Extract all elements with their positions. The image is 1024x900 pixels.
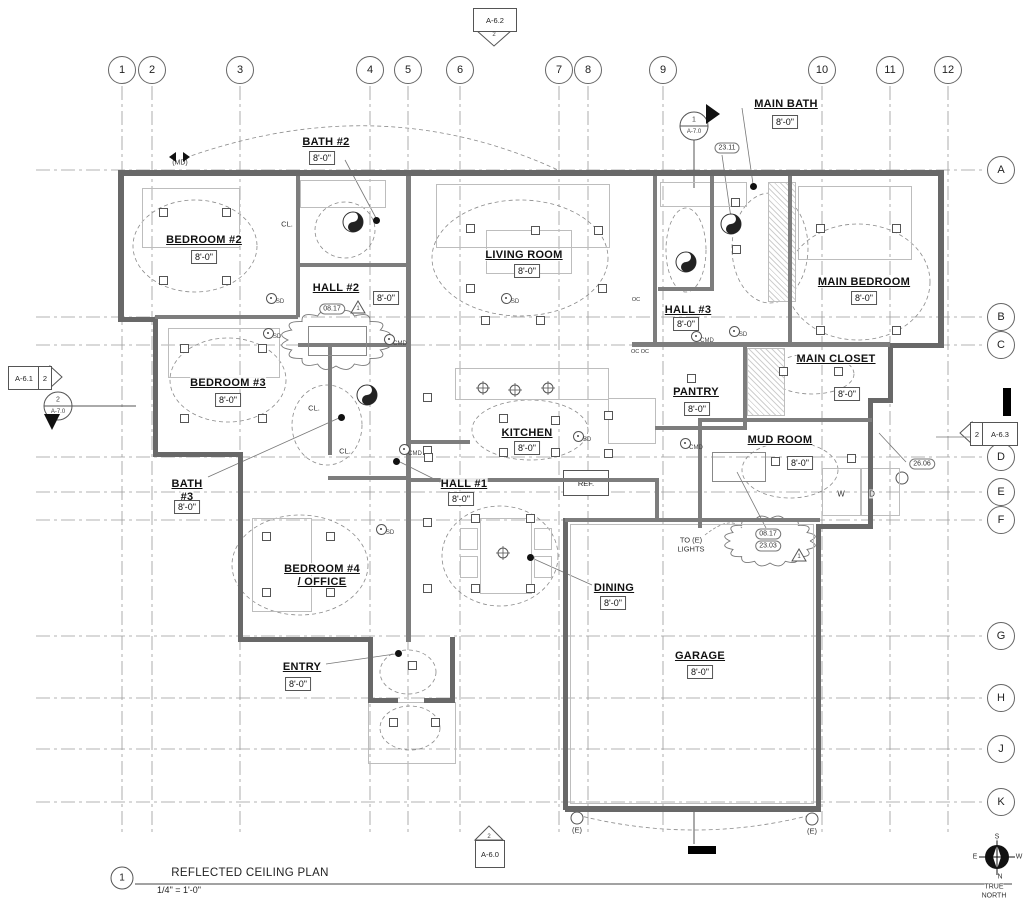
plan-note: CL.: [281, 220, 293, 229]
recessed-light-icon: [816, 224, 825, 233]
wall-segment: [155, 315, 298, 319]
recessed-light-icon: [159, 208, 168, 217]
recessed-light-icon: [604, 449, 613, 458]
grid-bubble-row-B: B: [987, 303, 1015, 331]
room-label: BEDROOM #4: [284, 563, 360, 575]
grid-bubble-column-10: 10: [808, 56, 836, 84]
grid-bubble-row-G: G: [987, 622, 1015, 650]
recessed-light-icon: [431, 718, 440, 727]
grid-bubble-column-8: 8: [574, 56, 602, 84]
wall-segment: [118, 170, 944, 176]
grid-bubble-column-2: 2: [138, 56, 166, 84]
furniture-outline: [455, 368, 609, 400]
wall-segment: [238, 452, 243, 642]
ceiling-height-tag: 8'-0": [174, 500, 200, 514]
section-cut-arrow: [706, 104, 720, 124]
plan-title: REFLECTED CEILING PLAN: [171, 867, 328, 879]
fixture-circle-icon: [806, 813, 818, 825]
recessed-light-icon: [262, 588, 271, 597]
matchline-bar: [1003, 388, 1011, 416]
furniture-outline: [300, 180, 386, 208]
section-marker-number: 2: [56, 397, 60, 404]
ceiling-height-tag: 8'-0": [514, 264, 540, 278]
keynote-dot: [527, 554, 534, 561]
recessed-light-icon: [262, 532, 271, 541]
room-label: KITCHEN: [502, 427, 553, 439]
recessed-light-icon: [526, 514, 535, 523]
room-label: / OFFICE: [298, 576, 347, 588]
ceiling-height-tag: 8'-0": [834, 387, 860, 401]
keynote-leader-line: [208, 418, 339, 477]
wall-segment: [565, 806, 820, 812]
section-cut-arrow: [44, 414, 60, 430]
recessed-light-icon: [466, 224, 475, 233]
recessed-light-icon: [551, 448, 560, 457]
smoke-detector-label: SD: [276, 299, 284, 305]
smoke-detector-label: SD: [386, 530, 394, 536]
recessed-light-icon: [471, 584, 480, 593]
wall-segment: [745, 342, 890, 347]
keynote-tag: 23.11: [715, 143, 740, 154]
recessed-light-icon: [258, 344, 267, 353]
room-label: ENTRY: [283, 661, 321, 673]
wall-segment: [698, 418, 702, 528]
section-marker-number: 1: [692, 117, 696, 124]
grid-bubble-row-D: D: [987, 443, 1015, 471]
recessed-light-icon: [180, 344, 189, 353]
wall-segment: [408, 440, 470, 444]
plan-note: W: [837, 490, 845, 499]
grid-bubble-row-F: F: [987, 506, 1015, 534]
grid-bubble-column-6: 6: [446, 56, 474, 84]
furniture-outline: [798, 186, 912, 260]
room-label: HALL #2: [313, 282, 360, 294]
furniture-outline: [608, 398, 656, 444]
co-detector-label: CMD: [393, 341, 407, 347]
grid-bubble-row-K: K: [987, 788, 1015, 816]
recessed-light-icon: [834, 367, 843, 376]
grid-bubble-row-C: C: [987, 331, 1015, 359]
keynote-dot: [395, 650, 402, 657]
smoke-detector-label: SD: [273, 334, 281, 340]
north-label-right: W: [1016, 854, 1023, 861]
ceiling-height-tag: 8'-0": [191, 250, 217, 264]
wall-segment: [888, 343, 893, 403]
room-label: MAIN CLOSET: [796, 353, 875, 365]
wall-segment: [296, 176, 300, 317]
keynote-tag: 23.03: [755, 541, 781, 552]
wall-segment: [658, 287, 714, 291]
recessed-light-icon: [551, 416, 560, 425]
wall-segment: [153, 452, 243, 457]
recessed-light-icon: [687, 374, 696, 383]
keynote-dot: [750, 183, 757, 190]
room-label: HALL #3: [665, 304, 712, 316]
wall-segment: [632, 342, 748, 347]
ceiling-height-tag: 8'-0": [373, 291, 399, 305]
recessed-light-icon: [731, 198, 740, 207]
plan-note: D: [869, 490, 875, 499]
room-label: BATH: [172, 478, 203, 490]
recessed-light-icon: [389, 718, 398, 727]
wall-segment: [653, 176, 657, 346]
ceiling-height-tag: 8'-0": [309, 151, 335, 165]
room-label: GARAGE: [675, 650, 725, 662]
detail-ref-sheet: A-6.1: [8, 366, 40, 390]
co-detector-label: CMD: [700, 338, 714, 344]
furniture-outline: [460, 556, 478, 578]
recessed-light-icon: [816, 326, 825, 335]
recessed-light-icon: [423, 393, 432, 402]
plan-note: (E): [572, 826, 582, 835]
wall-segment: [888, 343, 944, 348]
ceiling-height-tag: 8'-0": [448, 492, 474, 506]
wall-segment: [788, 176, 792, 346]
closet-hatch: [747, 348, 785, 416]
co-detector-label: CMD: [408, 451, 422, 457]
recessed-light-icon: [326, 532, 335, 541]
room-label: MAIN BEDROOM: [818, 276, 910, 288]
recessed-light-icon: [779, 367, 788, 376]
grid-bubble-column-11: 11: [876, 56, 904, 84]
plan-note: CL.: [308, 404, 320, 413]
plan-callout-number: 1: [111, 867, 134, 890]
detail-ref-sheet: A-6.0: [475, 840, 505, 868]
true-north-caption: TRUE: [984, 884, 1003, 891]
grid-bubble-column-7: 7: [545, 56, 573, 84]
grid-bubble-column-3: 3: [226, 56, 254, 84]
section-marker-sheet: A-7.0: [51, 409, 65, 415]
wall-segment: [424, 698, 455, 703]
recessed-light-icon: [466, 284, 475, 293]
wall-segment: [700, 418, 872, 422]
plan-note: TO (E): [680, 536, 702, 545]
recessed-light-icon: [771, 457, 780, 466]
ceiling-height-tag: 8'-0": [687, 665, 713, 679]
wall-segment: [565, 518, 820, 522]
wall-segment: [238, 637, 373, 642]
keynote-tag: 08.17: [319, 304, 345, 315]
room-label: HALL #1: [441, 478, 488, 490]
recessed-light-icon: [499, 448, 508, 457]
grid-bubble-column-5: 5: [394, 56, 422, 84]
keynote-leader-line: [326, 654, 395, 664]
detail-ref-number: 2: [38, 366, 52, 390]
ceiling-wiring-loop: [315, 202, 375, 258]
detail-ref-number: 2: [492, 32, 495, 38]
grid-bubble-row-A: A: [987, 156, 1015, 184]
recessed-light-icon: [847, 454, 856, 463]
refrigerator-box: REF.: [563, 470, 609, 496]
room-label: LIVING ROOM: [485, 249, 562, 261]
wall-segment: [655, 478, 659, 522]
recessed-light-icon: [326, 588, 335, 597]
recessed-light-icon: [180, 414, 189, 423]
plan-note: OC: [632, 297, 640, 303]
wiring-run: [185, 126, 558, 170]
recessed-light-icon: [258, 414, 267, 423]
recessed-light-icon: [408, 661, 417, 670]
ceiling-height-tag: 8'-0": [600, 596, 626, 610]
room-label: BATH #2: [302, 136, 349, 148]
ceiling-wiring-loop: [292, 385, 362, 465]
ceiling-height-tag: 8'-0": [673, 317, 699, 331]
plan-scale: 1/4" = 1'-0": [157, 885, 201, 895]
north-label-bottom: N: [997, 874, 1002, 881]
wall-segment: [153, 317, 158, 457]
ceiling-height-tag: 8'-0": [684, 402, 710, 416]
fixture-circle-icon: [571, 812, 583, 824]
recessed-light-icon: [531, 226, 540, 235]
recessed-light-icon: [481, 316, 490, 325]
wall-segment: [328, 347, 332, 455]
recessed-light-icon: [598, 284, 607, 293]
furniture-outline: [534, 528, 552, 550]
recessed-light-icon: [423, 584, 432, 593]
smoke-detector-label: SD: [583, 437, 591, 443]
wall-segment: [938, 170, 944, 348]
hall-light-fixture: [308, 326, 367, 356]
recessed-light-icon: [499, 414, 508, 423]
recessed-light-icon: [594, 226, 603, 235]
plan-note: CL.: [339, 447, 351, 456]
wall-segment: [118, 317, 158, 322]
plan-note: (E): [807, 827, 817, 836]
furniture-outline: [460, 528, 478, 550]
ceiling-height-tag: 8'-0": [285, 677, 311, 691]
plan-note: LIGHTS: [677, 545, 704, 554]
north-label-top: S: [995, 834, 1000, 841]
room-label: BEDROOM #3: [190, 377, 266, 389]
keynote-dot: [393, 458, 400, 465]
grid-bubble-column-1: 1: [108, 56, 136, 84]
recessed-light-icon: [424, 453, 433, 462]
ceiling-height-tag: 8'-0": [215, 393, 241, 407]
revision-triangle-number: 1: [356, 306, 359, 312]
recessed-light-icon: [892, 326, 901, 335]
smoke-detector-label: SD: [511, 299, 519, 305]
furniture-outline: [480, 518, 532, 594]
grid-bubble-column-4: 4: [356, 56, 384, 84]
ceiling-height-tag: 8'-0": [851, 291, 877, 305]
wall-segment: [368, 698, 398, 703]
furniture-outline: [570, 524, 814, 804]
true-north-caption: NORTH: [982, 893, 1007, 900]
recessed-light-icon: [423, 518, 432, 527]
wall-segment: [563, 518, 568, 810]
wall-segment: [118, 170, 124, 322]
room-label: DINING: [594, 582, 634, 594]
furniture-outline: [368, 702, 456, 764]
furniture-outline: [860, 468, 900, 516]
wall-segment: [298, 263, 408, 267]
recessed-light-icon: [526, 584, 535, 593]
detail-ref-sheet: A-6.2: [473, 8, 517, 32]
ceiling-height-tag: 8'-0": [787, 456, 813, 470]
plan-note: OC OC: [631, 349, 649, 355]
wall-segment: [406, 176, 411, 642]
keynote-tag: 26.06: [909, 459, 935, 470]
room-label: PANTRY: [673, 386, 719, 398]
matchline-bar: [688, 846, 716, 854]
ceiling-height-tag: 8'-0": [772, 115, 798, 129]
recessed-light-icon: [222, 208, 231, 217]
room-label: MUD ROOM: [748, 434, 813, 446]
furniture-outline: [534, 556, 552, 578]
room-label: MAIN BATH: [754, 98, 818, 110]
recessed-light-icon: [471, 514, 480, 523]
reflected-ceiling-plan-sheet: 123456789101112ABCDEFGHJKREF.SDSDSDSDSDS…: [0, 0, 1024, 900]
keynote-dot: [338, 414, 345, 421]
ceiling-wiring-loop: [666, 208, 706, 292]
recessed-light-icon: [732, 245, 741, 254]
recessed-light-icon: [604, 411, 613, 420]
room-label: BEDROOM #2: [166, 234, 242, 246]
recessed-light-icon: [892, 224, 901, 233]
mudroom-light-fixture: [712, 452, 766, 482]
recessed-light-icon: [159, 276, 168, 285]
wall-segment: [816, 524, 821, 812]
grid-bubble-row-J: J: [987, 735, 1015, 763]
wall-segment: [450, 637, 455, 703]
revision-triangle-number: 1: [797, 554, 800, 560]
section-marker-sheet: A-7.0: [687, 129, 701, 135]
smoke-detector-label: SD: [739, 332, 747, 338]
wall-segment: [710, 176, 714, 290]
keynote-tag: 08.17: [755, 529, 781, 540]
co-detector-label: CMD: [689, 445, 703, 451]
md-arrow-left: [169, 152, 176, 162]
grid-bubble-column-12: 12: [934, 56, 962, 84]
recessed-light-icon: [536, 316, 545, 325]
wall-segment: [368, 637, 373, 703]
grid-bubble-row-E: E: [987, 478, 1015, 506]
ceiling-height-tag: 8'-0": [514, 441, 540, 455]
detail-ref-sheet: A-6.3: [982, 422, 1018, 446]
north-label-left: E: [973, 854, 978, 861]
grid-bubble-row-H: H: [987, 684, 1015, 712]
keynote-dot: [373, 217, 380, 224]
wall-segment: [328, 476, 410, 480]
wall-segment: [820, 524, 873, 529]
grid-bubble-column-9: 9: [649, 56, 677, 84]
md-arrow-right: [183, 152, 190, 162]
recessed-light-icon: [222, 276, 231, 285]
keynote-leader-line: [879, 433, 906, 462]
